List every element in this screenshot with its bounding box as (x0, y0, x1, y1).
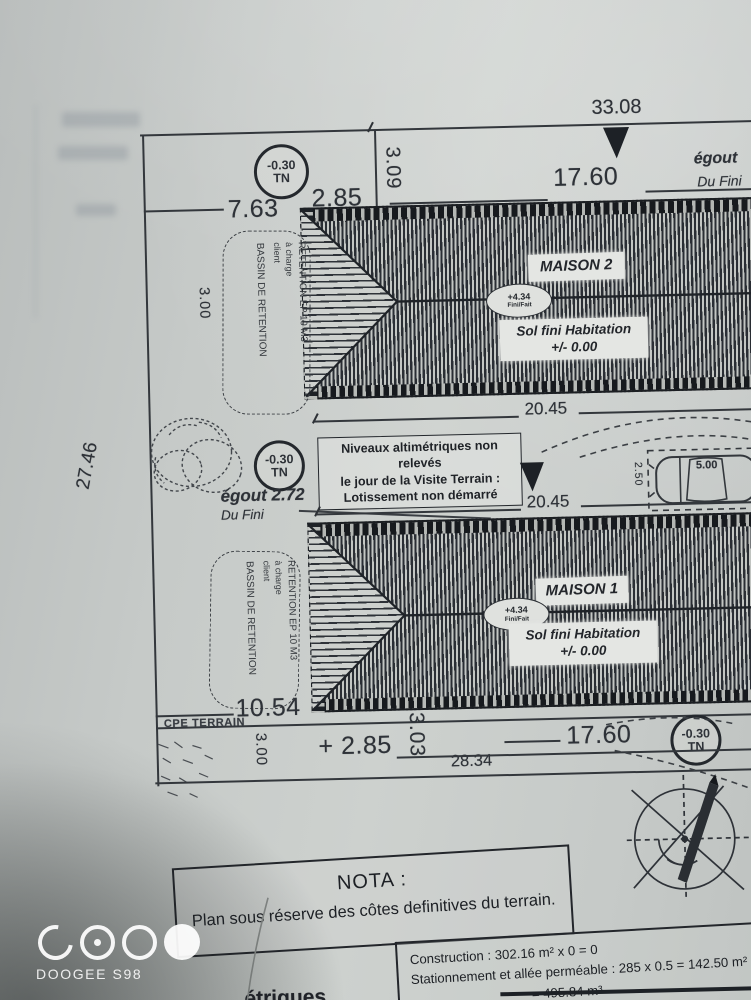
retention-note-2: RETENTION EP 10 M3 à charge client BASSI… (242, 560, 299, 701)
maison-2-roof: MAISON 2 +4.34 Fini/Fait Sol fini Habita… (300, 197, 751, 400)
floor-level-label: Sol fini Habitation +/- 0.00 (509, 621, 658, 666)
egout-label-top: égout (694, 149, 738, 168)
level-unit: TN (273, 172, 290, 185)
cpe-terrain-label: CPE TERRAIN (164, 716, 245, 730)
logo-ring-open (31, 918, 80, 967)
survey-note-line3: Lotissement non démarré (323, 486, 517, 507)
du-fini-label-mid: Du Fini (221, 507, 264, 523)
dim-line-20-45a (313, 416, 519, 423)
ridge-level-caption: Fini/Fait (507, 302, 531, 309)
page-curl-line (232, 895, 283, 1000)
maison-1-label: MAISON 1 (535, 576, 628, 606)
dim-33-08: 33.08 (566, 95, 667, 120)
floor-level-label: Sol fini Habitation +/- 0.00 (500, 317, 649, 361)
survey-note-box: Niveaux altimétriques non relevés le jou… (317, 433, 523, 511)
parking-dim-2-50: 2.50 (632, 462, 645, 487)
logo-disc (164, 924, 200, 960)
dim-17-60-top: 17.60 (553, 162, 619, 193)
dim-3-00-bottom: 3.00 (252, 733, 270, 767)
maison-2-label: MAISON 2 (528, 252, 625, 282)
dim-3-00-left: 3.00 (196, 287, 213, 320)
north-compass-icon (623, 771, 751, 902)
dim-3-09: 3.09 (380, 146, 404, 189)
level-value: -0.30 (265, 453, 294, 466)
dim-3-03: 3.03 (404, 712, 429, 757)
basin-label: BASSIN DE RETENTION (253, 243, 270, 411)
maison-1-roof: MAISON 1 +4.34 Fini/Fait Sol fini Habita… (307, 512, 751, 713)
survey-note-line1: Niveaux altimétriques non relevés (322, 437, 517, 474)
logo-ring-dot (80, 925, 115, 960)
flow-arrow-marker (603, 127, 630, 159)
flow-arrow-marker (520, 462, 545, 492)
doogee-logo-icon (38, 924, 200, 960)
house-name: MAISON 2 (540, 256, 613, 277)
basin-label: BASSIN DE RETENTION (242, 561, 259, 701)
retention-note-1: RETENTION EP 10 M3 à charge client BASSI… (253, 242, 311, 411)
site-plan-drawing: 33.08 -0.30 TN 2.85 3.09 17.60 égout Du … (0, 0, 751, 1000)
dim-27-46: 27.46 (69, 419, 108, 513)
level-value: -0.30 (267, 159, 296, 172)
level-badge-tn-top: -0.30 TN (253, 144, 309, 200)
watermark-device-label: DOOGEE S98 (36, 966, 142, 982)
egout-272-label: égout 2.72 (220, 485, 305, 507)
dim-7-63: 7.63 (227, 194, 278, 224)
ground-scribble (152, 736, 245, 802)
dim-2-85-bottom: + 2.85 (318, 731, 392, 762)
du-fini-label-top: Du Fini (697, 172, 742, 189)
house-name: MAISON 1 (545, 580, 618, 601)
dim-line-17-60-bottom (504, 740, 560, 743)
dim-line-7-63 (144, 209, 224, 213)
floor-level-line1: Sol fini Habitation (516, 321, 631, 341)
floor-level-line1: Sol fini Habitation (525, 625, 640, 645)
logo-ring (122, 925, 157, 960)
dim-20-45-bottom: 20.45 (527, 492, 570, 513)
dim-line-vertical (374, 131, 378, 215)
floor-level-line2: +/- 0.00 (551, 338, 598, 356)
parking-dim-5-00: 5.00 (696, 459, 718, 472)
ridge-level-value: +4.34 (505, 606, 528, 616)
dim-10-54: 10.54 (235, 693, 301, 724)
photo-of-site-plan: 33.08 -0.30 TN 2.85 3.09 17.60 égout Du … (0, 0, 751, 1000)
level-unit: TN (271, 466, 288, 479)
ridge-level-caption: Fini/Fait (504, 615, 528, 622)
top-boundary-line (140, 120, 751, 136)
ridge-level-value: +4.34 (507, 292, 530, 302)
floor-level-line2: +/- 0.00 (560, 643, 607, 661)
car-top-view-icon (646, 446, 751, 513)
